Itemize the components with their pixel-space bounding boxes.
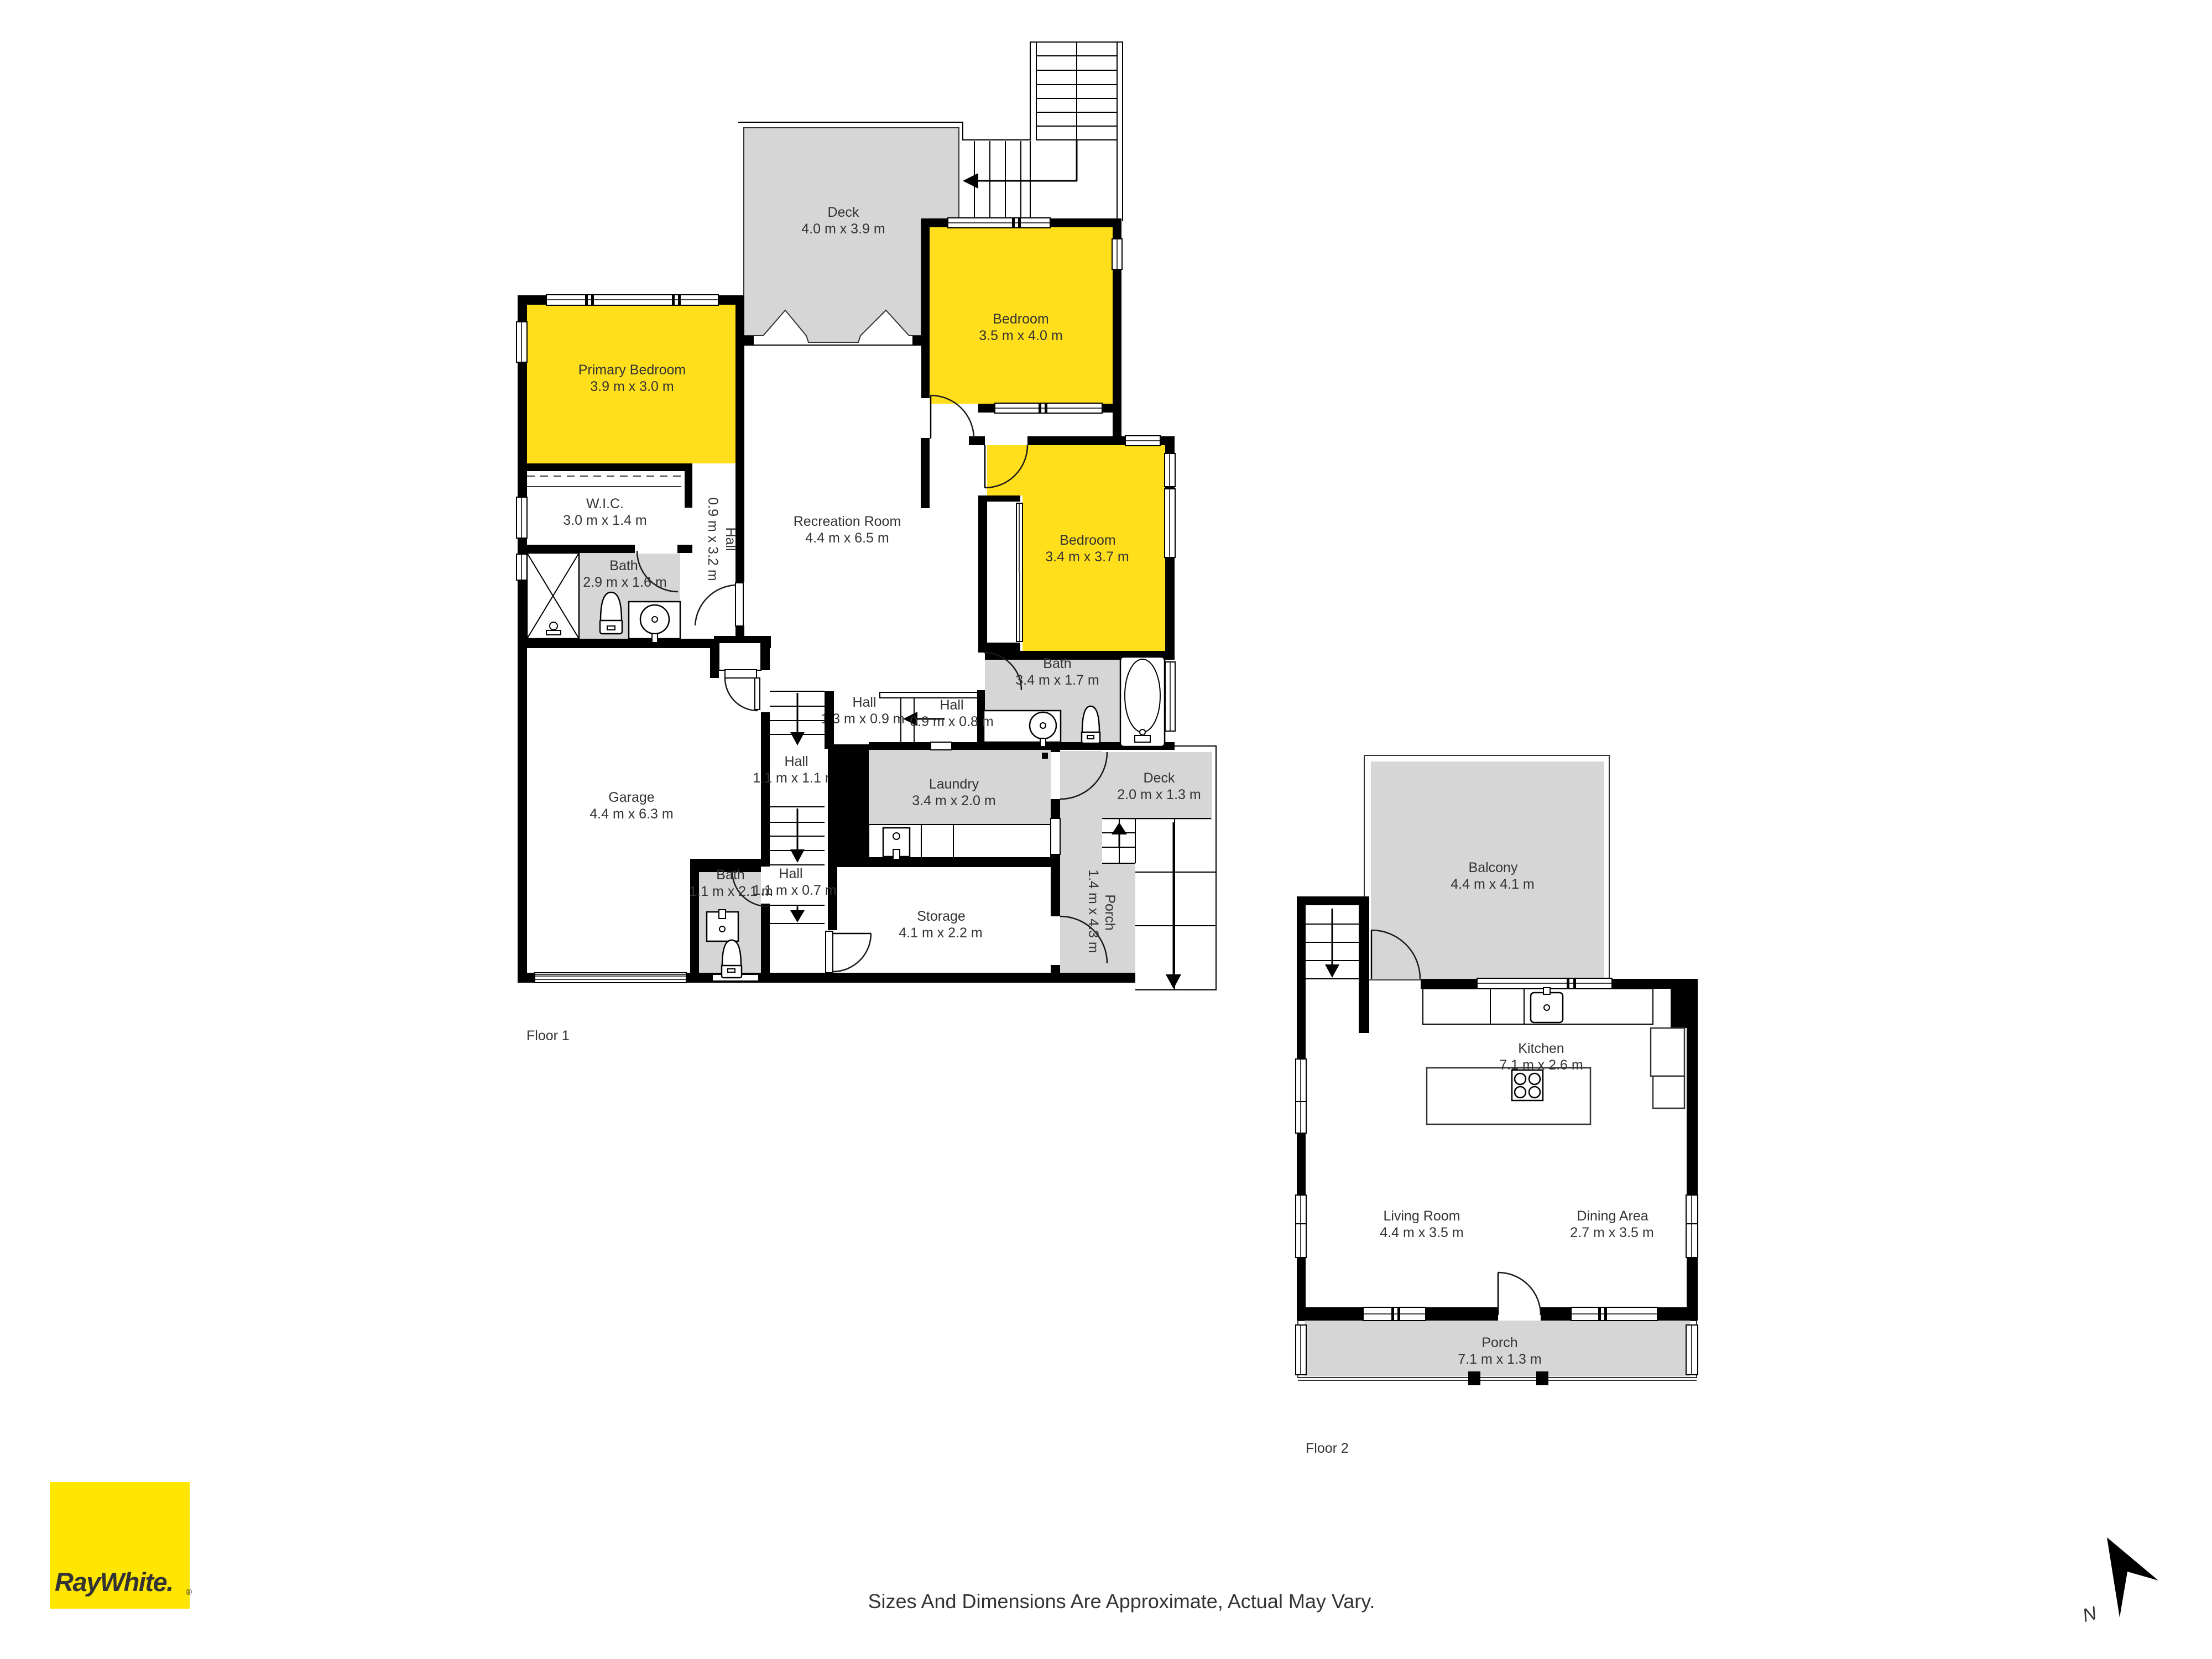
svg-text:Hall: Hall: [784, 754, 808, 769]
svg-text:Primary Bedroom: Primary Bedroom: [578, 362, 686, 378]
svg-text:4.4 m x 4.1 m: 4.4 m x 4.1 m: [1451, 877, 1534, 892]
svg-text:Bedroom: Bedroom: [993, 311, 1048, 327]
svg-text:Garage: Garage: [608, 790, 654, 805]
svg-text:3.4 m x 2.0 m: 3.4 m x 2.0 m: [912, 793, 995, 808]
svg-text:Hall: Hall: [779, 866, 802, 881]
svg-text:Deck: Deck: [828, 205, 859, 220]
svg-text:Bath: Bath: [1043, 656, 1071, 671]
svg-text:Recreation Room: Recreation Room: [794, 514, 901, 529]
svg-text:3.0 m x 1.4 m: 3.0 m x 1.4 m: [563, 513, 646, 528]
svg-text:®: ®: [186, 1588, 192, 1597]
svg-text:W.I.C.: W.I.C.: [586, 496, 624, 512]
svg-text:7.1 m x 2.6 m: 7.1 m x 2.6 m: [1499, 1057, 1583, 1073]
svg-text:Hall: Hall: [852, 695, 876, 710]
svg-text:3.4 m x 3.7 m: 3.4 m x 3.7 m: [1045, 549, 1129, 565]
svg-text:Bath: Bath: [609, 558, 638, 573]
svg-text:0.9 m x 3.2 m: 0.9 m x 3.2 m: [705, 497, 721, 581]
svg-text:4.4 m x 6.5 m: 4.4 m x 6.5 m: [805, 530, 889, 546]
svg-text:Kitchen: Kitchen: [1518, 1041, 1564, 1056]
svg-text:Floor 2: Floor 2: [1306, 1441, 1349, 1456]
svg-text:1.1 m x 0.7 m: 1.1 m x 0.7 m: [753, 883, 836, 898]
svg-text:2.9 m x 1.6 m: 2.9 m x 1.6 m: [583, 575, 666, 590]
svg-text:Hall: Hall: [723, 527, 738, 551]
svg-text:Living Room: Living Room: [1384, 1208, 1460, 1224]
svg-text:Bath: Bath: [716, 867, 744, 883]
svg-text:Storage: Storage: [917, 909, 966, 924]
svg-text:Sizes And Dimensions Are Appro: Sizes And Dimensions Are Approximate, Ac…: [868, 1590, 1375, 1613]
svg-text:RayWhite.: RayWhite.: [55, 1567, 173, 1597]
svg-text:7.1 m x 1.3 m: 7.1 m x 1.3 m: [1458, 1352, 1541, 1367]
svg-text:Dining Area: Dining Area: [1577, 1208, 1648, 1224]
svg-text:1.4 m x 4.3 m: 1.4 m x 4.3 m: [1086, 869, 1101, 953]
svg-text:4.0 m x 3.9 m: 4.0 m x 3.9 m: [801, 221, 885, 237]
svg-text:1.1 m x 1.1 m: 1.1 m x 1.1 m: [753, 770, 836, 786]
svg-text:4.4 m x 6.3 m: 4.4 m x 6.3 m: [589, 806, 673, 822]
svg-text:Balcony: Balcony: [1469, 860, 1518, 875]
svg-text:4.1 m x 2.2 m: 4.1 m x 2.2 m: [899, 925, 982, 941]
svg-text:3.5 m x 4.0 m: 3.5 m x 4.0 m: [979, 328, 1062, 343]
svg-text:Hall: Hall: [940, 697, 963, 713]
svg-text:0.9 m x 0.8 m: 0.9 m x 0.8 m: [910, 714, 993, 729]
svg-text:Bedroom: Bedroom: [1060, 533, 1115, 548]
svg-text:2.7 m x 3.5 m: 2.7 m x 3.5 m: [1570, 1225, 1653, 1240]
svg-text:Porch: Porch: [1481, 1335, 1517, 1350]
svg-text:Deck: Deck: [1144, 770, 1175, 786]
svg-text:3.4 m x 1.7 m: 3.4 m x 1.7 m: [1015, 672, 1099, 688]
svg-text:Floor 1: Floor 1: [526, 1028, 570, 1044]
svg-text:2.0 m x 1.3 m: 2.0 m x 1.3 m: [1117, 787, 1201, 802]
svg-text:4.4 m x 3.5 m: 4.4 m x 3.5 m: [1380, 1225, 1463, 1240]
svg-text:Porch: Porch: [1102, 894, 1118, 930]
svg-text:Laundry: Laundry: [929, 776, 979, 792]
svg-text:3.9 m x 3.0 m: 3.9 m x 3.0 m: [590, 379, 674, 394]
